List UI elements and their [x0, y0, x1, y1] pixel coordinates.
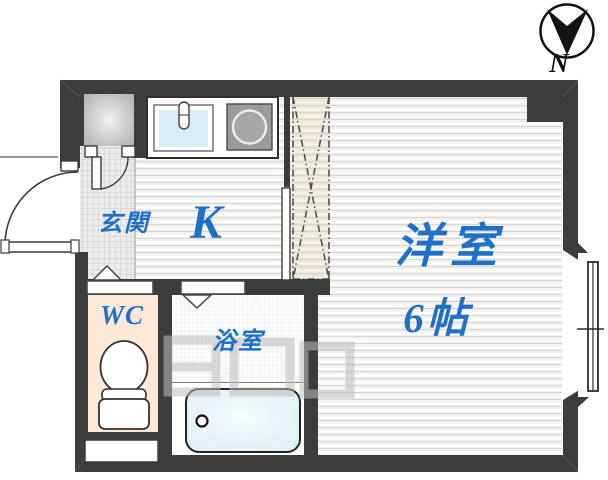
- toilet-window: [85, 440, 158, 462]
- front-door-leaf: [2, 242, 78, 252]
- bathtub-drain-icon: [197, 416, 208, 427]
- label-western-room: 洋室: [395, 221, 505, 273]
- label-toilet: WC: [100, 300, 144, 330]
- inner-door-leaf: [92, 157, 101, 189]
- label-bathroom: 浴室: [212, 328, 266, 355]
- floorplan-page: 玄関 K 洋室 6帖 WC 浴室 N: [0, 0, 608, 480]
- compass-north-label: N: [548, 48, 570, 78]
- window-right: [577, 253, 604, 397]
- sliding-door-leaf: [282, 188, 290, 280]
- stove-burner-icon: [233, 111, 266, 144]
- toilet-tank-icon: [99, 399, 149, 429]
- closet-partition: [292, 97, 330, 281]
- floor-plan: 玄関 K 洋室 6帖 WC 浴室 N: [0, 0, 608, 480]
- door-jamb-top: [61, 161, 78, 171]
- label-western-room-size: 6帖: [403, 295, 474, 341]
- label-kitchen: K: [189, 196, 225, 249]
- kitchen-counter: [147, 97, 278, 158]
- label-entrance: 玄関: [98, 210, 152, 237]
- toilet-bowl-icon: [101, 341, 148, 393]
- storage-shaft-box: [84, 94, 134, 146]
